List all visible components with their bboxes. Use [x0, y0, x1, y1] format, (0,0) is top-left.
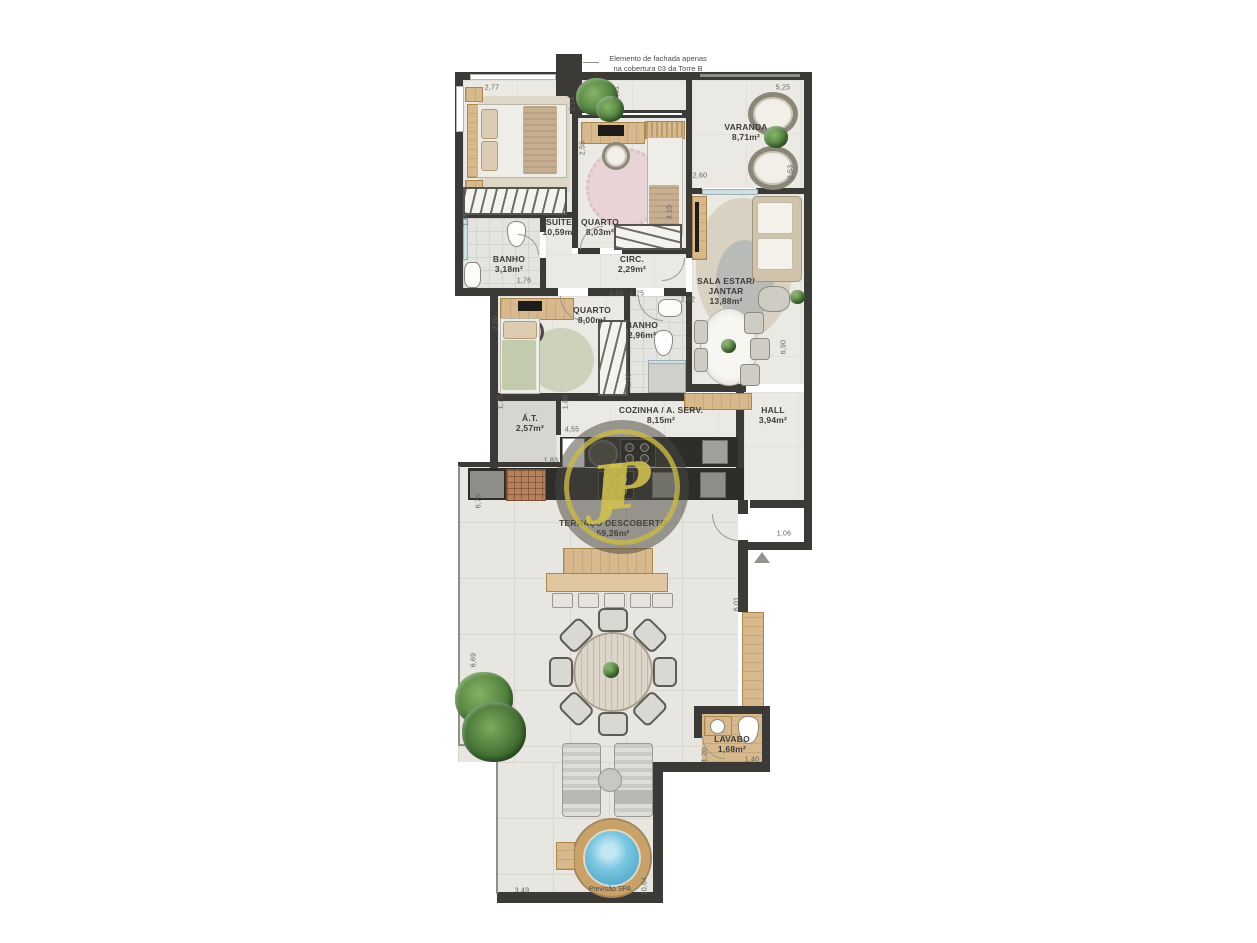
- banho-suite-sink: [464, 262, 481, 288]
- sofa-cushion: [757, 202, 793, 234]
- quarto2-monitor: [518, 301, 542, 311]
- dimension-label: 2,60: [626, 373, 633, 387]
- suite-nightstand: [465, 87, 483, 102]
- dimension-label: 5,14: [570, 97, 577, 111]
- dimension-label: 1,80: [563, 395, 570, 409]
- suite-blanket: [523, 106, 557, 174]
- dining-chair: [740, 364, 760, 386]
- bar-stool: [604, 593, 625, 608]
- lavabo-sink: [710, 719, 725, 734]
- wall-right: [804, 72, 812, 550]
- banho2-shower-glass: [648, 360, 686, 364]
- armchair: [758, 286, 790, 312]
- quarto2-blanket: [502, 340, 536, 390]
- wall-varanda-sala-a: [692, 188, 702, 194]
- dimension-label: 1,20: [702, 748, 709, 762]
- dimension-label: 4,55: [565, 427, 579, 434]
- wall-quarto1-varanda: [686, 80, 692, 188]
- dimension-label: 1,75: [498, 395, 505, 409]
- dimension-label: 6,69: [471, 653, 478, 667]
- watermark-monogram: JP: [588, 448, 639, 525]
- spa-step: [556, 842, 575, 870]
- dimension-label: 6,79: [476, 494, 483, 508]
- dimension-label: 6,01: [734, 597, 741, 611]
- kitchen-appliance: [702, 440, 728, 464]
- suite-window: [470, 74, 556, 80]
- sofa-cushion: [757, 238, 793, 270]
- dining-chair: [694, 348, 708, 372]
- banho2-shower: [648, 362, 686, 393]
- suite-pillow: [481, 109, 498, 139]
- wall-circ-bottom-c: [664, 288, 686, 296]
- dimension-label: 6,90: [781, 340, 788, 354]
- quarto2-pillow: [503, 321, 537, 339]
- watermark: JP: [555, 420, 689, 554]
- suite-pillow: [481, 141, 498, 171]
- terrace-appliance: [700, 472, 726, 498]
- dimension-label: 1,25: [630, 291, 644, 298]
- terrace-chair: [653, 657, 677, 687]
- wall-circ-sala-b: [686, 292, 692, 392]
- wall-entry-jamb-a: [738, 500, 748, 514]
- dining-chair: [750, 338, 770, 360]
- dimension-label: 2,60: [693, 173, 707, 180]
- room-label-quarto-2: QUARTO8,00m²: [573, 305, 611, 325]
- dimension-label: 1,83: [544, 458, 558, 465]
- dimension-label: 3,15: [667, 205, 674, 219]
- bar-stool: [652, 593, 673, 608]
- bar-stool: [630, 593, 651, 608]
- room-label-banho-suite: BANHO3,18m²: [493, 254, 525, 274]
- room-label-quarto-1: QUARTO8,03m²: [581, 217, 619, 237]
- dimension-label: 2,50: [493, 316, 500, 330]
- grill: [506, 469, 546, 501]
- room-label-area-tecnica: Á.T.2,57m²: [516, 413, 544, 433]
- dimension-label: 1,40: [745, 757, 759, 764]
- room-label-sala-estar-jantar: SALA ESTAR/JANTAR13,88m²: [697, 276, 755, 306]
- lavabo-wall-top: [694, 706, 770, 714]
- dimension-label: 3,49: [515, 888, 529, 895]
- dimension-label: 3,20: [609, 291, 623, 298]
- dimension-label: 2,53: [788, 165, 795, 179]
- wall-terraco-lower-right: [653, 762, 663, 903]
- room-label-varanda: VARANDA8,71m²: [724, 122, 767, 142]
- room-label-hall: HALL3,94m²: [759, 405, 787, 425]
- bar-stool: [552, 593, 573, 608]
- quarto1-wardrobe: [614, 224, 682, 250]
- varanda-sliding-door: [702, 189, 758, 195]
- terrace-chair: [598, 608, 628, 632]
- quarto2-wardrobe: [598, 320, 628, 396]
- wall-hall-bottom: [750, 500, 812, 508]
- annotation-leader-line: [583, 62, 599, 63]
- dining-chair: [744, 312, 764, 334]
- sala-plant: [790, 290, 805, 304]
- dining-chair: [694, 320, 708, 344]
- wall-at-cozinha: [556, 401, 561, 435]
- terraco-lower-left-edge: [496, 746, 498, 894]
- dimension-label: 0,81: [614, 86, 621, 100]
- spa-label: Previsão SPA: [589, 885, 632, 895]
- sun-lounger: [562, 743, 601, 817]
- wall-circ-bottom-a: [455, 288, 558, 296]
- quarto1-chair: [602, 142, 630, 170]
- lavabo-wall-left: [694, 706, 702, 738]
- side-table: [598, 768, 622, 792]
- varanda-parapet: [700, 74, 800, 77]
- dimension-label: 1,76: [517, 278, 531, 285]
- entry-marker-triangle: [754, 552, 770, 563]
- area-tecnica-floor: [498, 401, 556, 465]
- facade-annotation-line: Elemento de fachada apenas: [609, 54, 707, 64]
- room-label-circ: CIRC.2,29m²: [618, 254, 646, 274]
- dimension-label: 1,06: [777, 531, 791, 538]
- dimension-label: 5,25: [776, 85, 790, 92]
- dimension-label: 2,82: [681, 297, 695, 304]
- tv: [695, 202, 699, 252]
- facade-annotation: Elemento de fachada apenasna cobertura 0…: [609, 54, 707, 73]
- room-label-banho-2: BANHO2,96m²: [626, 320, 658, 340]
- lavabo-wall-right: [762, 706, 770, 766]
- bar-stool: [578, 593, 599, 608]
- bar-table-base: [546, 573, 668, 592]
- room-label-suite: SUÍTE10,59m²: [542, 217, 575, 237]
- dimension-label: 10,64: [642, 877, 649, 896]
- dimension-label: 2,55: [580, 141, 587, 155]
- palm-plant-lower: [462, 702, 526, 762]
- dimension-label: 2,77: [485, 85, 499, 92]
- quarto1-monitor: [598, 125, 624, 136]
- dimension-label: 1,80: [463, 212, 470, 226]
- wall-entry-bottom: [748, 542, 812, 550]
- dining-table-plant: [721, 339, 736, 353]
- suite-wardrobe: [463, 187, 567, 215]
- facade-annotation-line: na cobertura 03 da Torre B: [609, 64, 707, 74]
- floor-plan: Elemento de fachada apenasna cobertura 0…: [0, 0, 1257, 943]
- terrace-planter: [742, 612, 764, 718]
- wall-terraco-right-step: [653, 762, 770, 772]
- terrace-table-plant: [603, 662, 619, 678]
- terrace-chair: [549, 657, 573, 687]
- room-label-lavabo: LAVABO1,68m²: [714, 734, 750, 754]
- suite-side-window: [456, 86, 464, 132]
- terrace-chair: [598, 712, 628, 736]
- wall-sala-cozinha: [692, 384, 746, 392]
